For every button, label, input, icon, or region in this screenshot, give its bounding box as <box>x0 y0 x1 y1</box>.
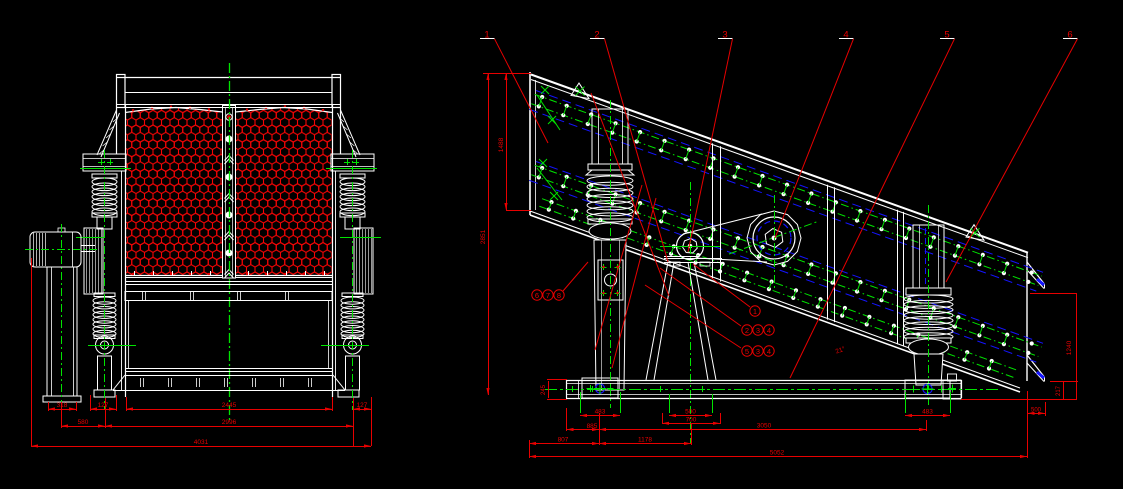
svg-text:1: 1 <box>753 307 757 316</box>
svg-text:245: 245 <box>541 384 547 395</box>
svg-text:1488: 1488 <box>498 137 505 152</box>
svg-text:885: 885 <box>587 423 598 430</box>
svg-text:483: 483 <box>595 409 606 416</box>
svg-text:217: 217 <box>1056 385 1062 396</box>
svg-text:2996: 2996 <box>222 419 237 426</box>
svg-text:4: 4 <box>767 347 771 356</box>
svg-text:3: 3 <box>756 326 760 335</box>
svg-text:3050: 3050 <box>757 423 772 430</box>
svg-text:2: 2 <box>745 326 749 335</box>
svg-text:127: 127 <box>98 402 109 409</box>
svg-text:483: 483 <box>922 409 933 416</box>
svg-text:4: 4 <box>767 326 771 335</box>
svg-text:1178: 1178 <box>638 437 652 444</box>
svg-text:6: 6 <box>535 291 539 300</box>
svg-text:580: 580 <box>78 419 89 426</box>
svg-text:5: 5 <box>745 347 749 356</box>
svg-text:500: 500 <box>1031 407 1042 413</box>
svg-text:4031: 4031 <box>194 439 209 446</box>
svg-text:127: 127 <box>357 402 368 409</box>
svg-text:7: 7 <box>546 291 550 300</box>
svg-text:3: 3 <box>756 347 760 356</box>
svg-text:807: 807 <box>558 437 569 444</box>
svg-text:2445: 2445 <box>222 402 237 409</box>
svg-text:700: 700 <box>686 416 697 423</box>
svg-text:2851: 2851 <box>480 229 487 244</box>
svg-text:8: 8 <box>557 291 561 300</box>
svg-text:318: 318 <box>57 402 68 409</box>
svg-text:500: 500 <box>685 409 696 416</box>
svg-text:1240: 1240 <box>1066 340 1073 355</box>
svg-text:5052: 5052 <box>770 450 785 457</box>
